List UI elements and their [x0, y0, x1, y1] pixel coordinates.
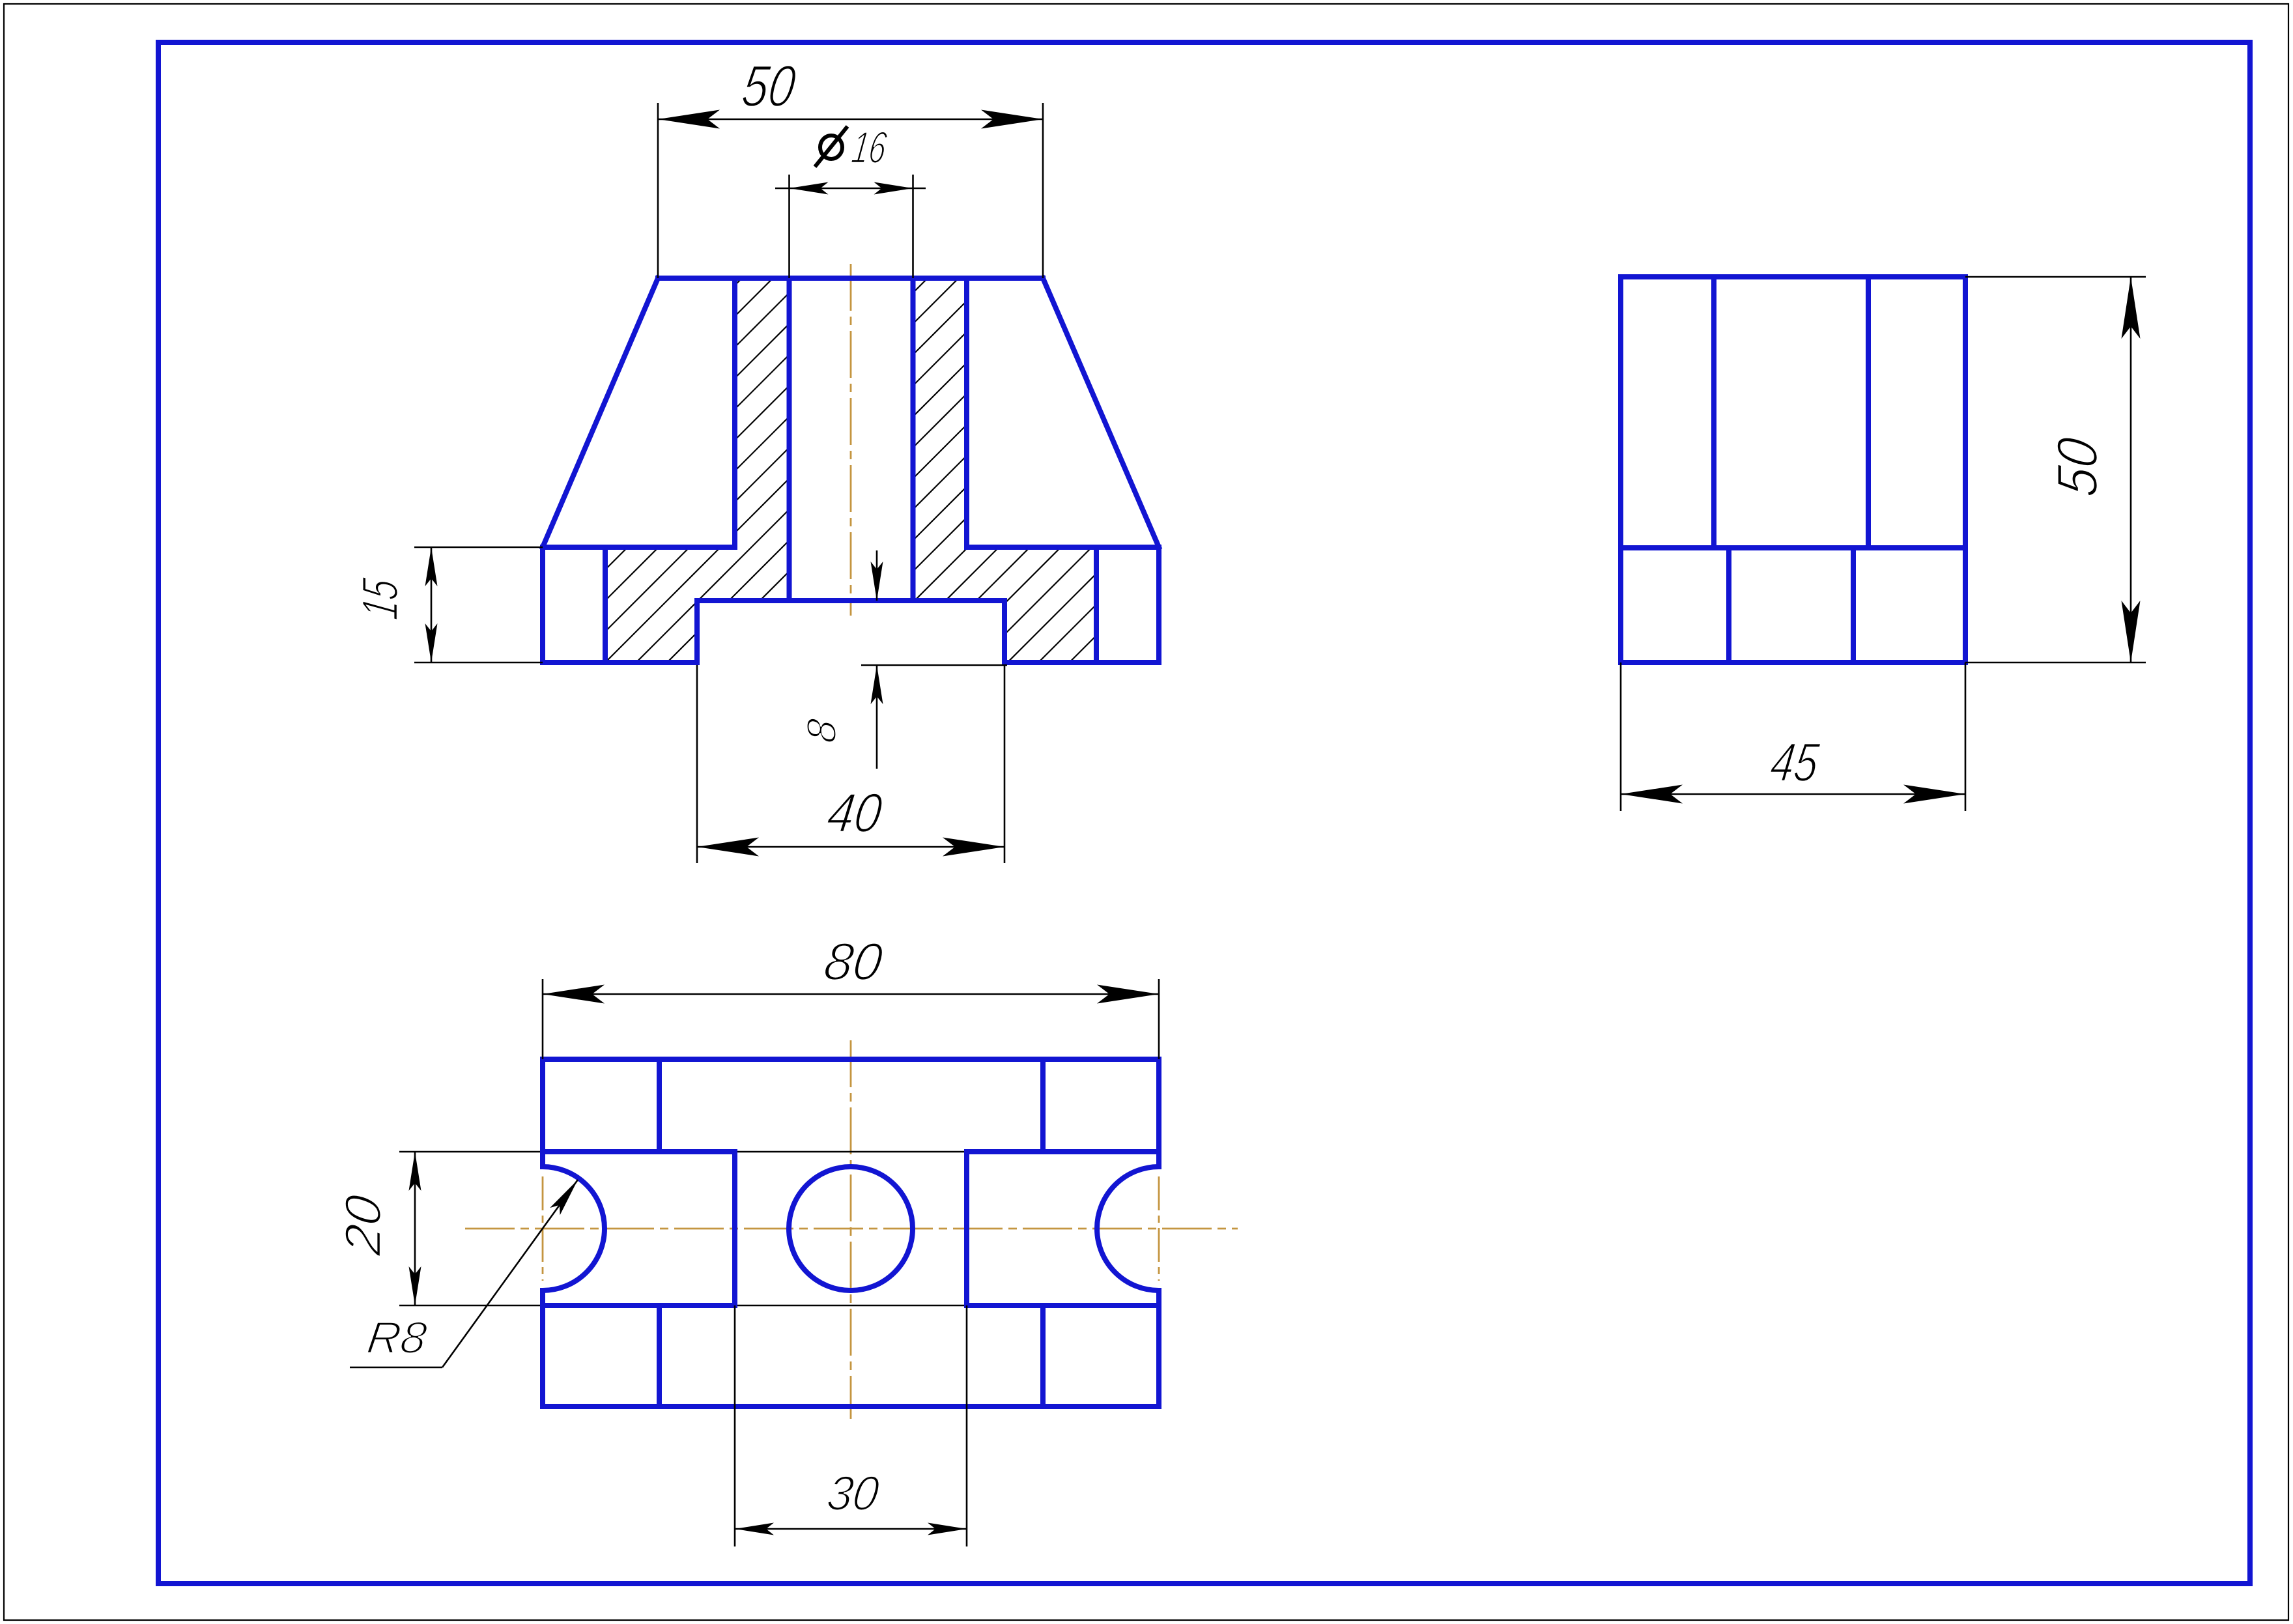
- svg-text:80: 80: [820, 932, 886, 991]
- svg-text:15: 15: [351, 575, 408, 623]
- svg-text:R8: R8: [364, 1312, 430, 1363]
- svg-text:50: 50: [738, 53, 799, 119]
- svg-text:50: 50: [2045, 434, 2109, 500]
- svg-text:30: 30: [824, 1466, 883, 1520]
- svg-text:40: 40: [823, 782, 885, 844]
- svg-text:45: 45: [1767, 732, 1823, 793]
- svg-text:20: 20: [334, 1191, 392, 1259]
